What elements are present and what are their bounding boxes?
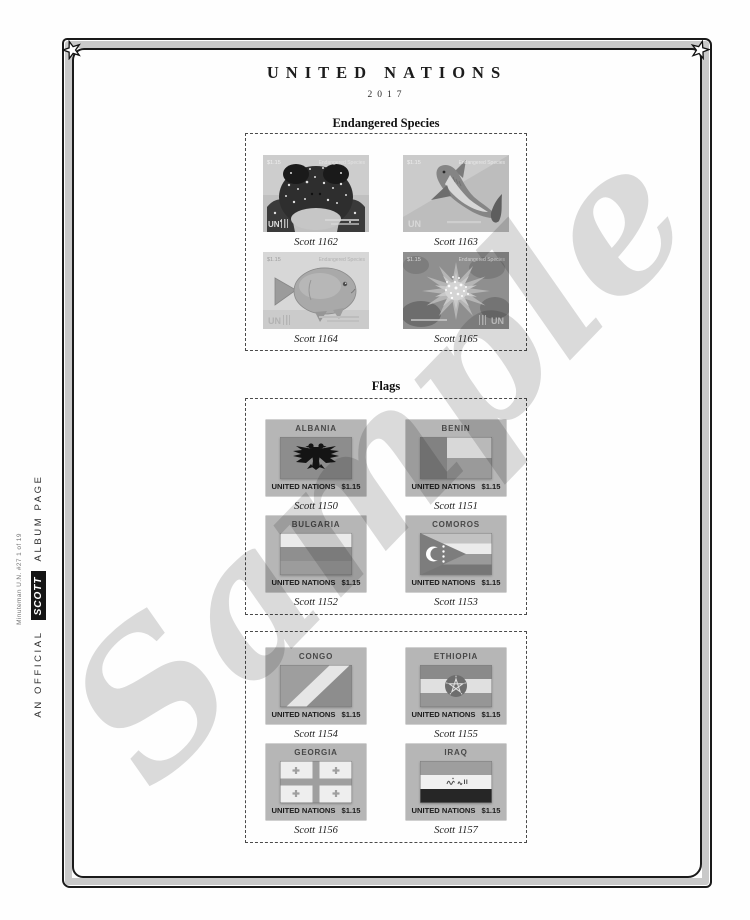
stamp-caption: Scott 1155 [434, 729, 478, 741]
page-title: UNITED NATIONS [175, 63, 599, 83]
stamp-denomination: $1.15 [481, 806, 500, 815]
stamp-cell-scott-1153: COMOROS [386, 516, 526, 609]
tree-frog-stamp-image: $1.15 Endangered Species UN [263, 155, 369, 232]
stamp-caption: Scott 1163 [434, 237, 478, 249]
stamp-cell-scott-1156: GEORGIA UNITE [246, 744, 386, 837]
stamp-denomination: $1.15 [341, 578, 360, 587]
flags-box-2: CONGO UNITED NATIONS $1.15 Scott 1154 [245, 631, 527, 843]
bulgaria-flag-art [280, 533, 352, 575]
stamp-caption: Scott 1153 [434, 597, 478, 609]
stamp-bottom-label: UNITED NATIONS $1.15 [272, 578, 361, 587]
comoros-flag-art [420, 533, 492, 575]
albania-flag-art [280, 437, 352, 479]
stamp-caption: Scott 1162 [294, 237, 338, 249]
stamp-cell-scott-1150: ALBANIA UNI [246, 420, 386, 513]
stamp-denomination: $1.15 [267, 257, 281, 263]
stamp-bottom-label: UNITED NATIONS $1.15 [412, 578, 501, 587]
un-mark: UN [268, 316, 281, 326]
stamp-cell-scott-1155: ETHIOPIA [386, 648, 526, 741]
country-name: BULGARIA [292, 520, 341, 529]
stamp-cell-scott-1152: BULGARIA UNITED NATIONS $1.15 Scott 1152 [246, 516, 386, 609]
un-nation-label: UNITED NATIONS [412, 806, 476, 815]
flag-stamp-comoros: COMOROS [406, 516, 506, 592]
stamp-cell-scott-1164: $1.15 Endangered Species UN Scott 1164 [246, 252, 386, 346]
stamp-caption: Scott 1150 [294, 501, 338, 513]
stamp-denomination: $1.15 [481, 710, 500, 719]
country-name: CONGO [299, 652, 333, 661]
congo-flag-art [280, 665, 352, 707]
un-nation-label: UNITED NATIONS [272, 482, 336, 491]
country-name: COMOROS [432, 520, 480, 529]
stamp-bottom-label: UNITED NATIONS $1.15 [412, 482, 501, 491]
flag-stamp-iraq: IRAQ [406, 744, 506, 820]
stamp-denomination: $1.15 [407, 257, 421, 263]
un-nation-label: UNITED NATIONS [272, 578, 336, 587]
stamp-bottom-label: UNITED NATIONS $1.15 [412, 806, 501, 815]
star-emblem-icon [445, 675, 467, 697]
flag-stamp-bulgaria: BULGARIA UNITED NATIONS $1.15 [266, 516, 366, 592]
flag-stamp-albania: ALBANIA UNI [266, 420, 366, 496]
sidebar-prefix: AN OFFICIAL [33, 630, 44, 717]
un-mark: UN [408, 219, 421, 229]
stamp-denomination: $1.15 [341, 482, 360, 491]
stamp-bottom-label: UNITED NATIONS $1.15 [272, 806, 361, 815]
un-mark: UN [491, 316, 504, 326]
un-nation-label: UNITED NATIONS [412, 482, 476, 491]
stamp-cell-scott-1151: BENIN UNITED NATIONS $1.15 Scott 1151 [386, 420, 526, 513]
un-nation-label: UNITED NATIONS [412, 578, 476, 587]
stamp-caption: Scott 1154 [294, 729, 338, 741]
corner-star-icon [690, 40, 710, 60]
page-year: 2017 [175, 90, 599, 100]
stamp-denomination: $1.15 [481, 578, 500, 587]
un-nation-label: UNITED NATIONS [272, 806, 336, 815]
stamp-denomination: $1.15 [481, 482, 500, 491]
benin-flag-art [420, 437, 492, 479]
stamp-caption: Scott 1157 [434, 825, 478, 837]
sidebar-official-text: AN OFFICIAL SCOTT ALBUM PAGE [30, 480, 46, 712]
stamp-denomination: $1.15 [341, 710, 360, 719]
endangered-species-box: $1.15 Endangered Species UN Scott 1162 [245, 133, 527, 351]
stamp-caption: Scott 1165 [434, 334, 478, 346]
stamp-series-label: Endangered Species [319, 257, 366, 263]
flags-box-1: ALBANIA UNI [245, 398, 527, 615]
stamp-cell-scott-1157: IRAQ [386, 744, 526, 837]
stamp-cell-scott-1162: $1.15 Endangered Species UN Scott 1162 [246, 155, 386, 249]
stamp-bottom-label: UNITED NATIONS $1.15 [272, 482, 361, 491]
corner-star-icon [62, 40, 82, 60]
stamp-caption: Scott 1151 [434, 501, 478, 513]
sidebar-edition-text: Minuteman U.N. #27 1 of 19 [16, 532, 26, 626]
stamp-denomination: $1.15 [267, 160, 281, 166]
country-name: GEORGIA [294, 748, 337, 757]
georgia-flag-art [280, 761, 352, 803]
country-name: ETHIOPIA [434, 652, 478, 661]
flag-stamp-benin: BENIN UNITED NATIONS $1.15 [406, 420, 506, 496]
flag-stamp-ethiopia: ETHIOPIA [406, 648, 506, 724]
country-name: BENIN [442, 424, 471, 433]
flag-stamp-congo: CONGO UNITED NATIONS $1.15 [266, 648, 366, 724]
un-nation-label: UNITED NATIONS [412, 710, 476, 719]
stamp-series-label: Endangered Species [319, 160, 366, 166]
flag-stamp-georgia: GEORGIA UNITE [266, 744, 366, 820]
country-name: IRAQ [444, 748, 467, 757]
ethiopia-flag-art [420, 665, 492, 707]
shark-stamp-image: $1.15 Endangered Species UN [403, 155, 509, 232]
un-mark: UN [268, 220, 280, 229]
stamp-series-label: Endangered Species [459, 257, 506, 263]
sidebar-suffix: ALBUM PAGE [33, 474, 44, 561]
section-heading-endangered-species: Endangered Species [245, 116, 527, 131]
section-heading-flags: Flags [245, 379, 527, 394]
stamp-denomination: $1.15 [341, 806, 360, 815]
stamp-bottom-label: UNITED NATIONS $1.15 [272, 710, 361, 719]
angelfish-stamp-image: $1.15 Endangered Species UN [263, 252, 369, 329]
stamp-caption: Scott 1152 [294, 597, 338, 609]
stamp-series-label: Endangered Species [459, 160, 506, 166]
stamp-bottom-label: UNITED NATIONS $1.15 [412, 710, 501, 719]
un-nation-label: UNITED NATIONS [272, 710, 336, 719]
stamp-cell-scott-1163: $1.15 Endangered Species UN Scott 1163 [386, 155, 526, 249]
stamp-denomination: $1.15 [407, 160, 421, 166]
cactus-flower-stamp-image: $1.15 Endangered Species UN [403, 252, 509, 329]
stamp-caption: Scott 1164 [294, 334, 338, 346]
iraq-flag-art [420, 761, 492, 803]
stamp-cell-scott-1165: $1.15 Endangered Species UN Scott 1165 [386, 252, 526, 346]
album-page: AN OFFICIAL SCOTT ALBUM PAGE Minuteman U… [0, 0, 750, 920]
country-name: ALBANIA [295, 424, 337, 433]
stamp-cell-scott-1154: CONGO UNITED NATIONS $1.15 Scott 1154 [246, 648, 386, 741]
stamp-caption: Scott 1156 [294, 825, 338, 837]
scott-brand-logo: SCOTT [31, 571, 46, 620]
